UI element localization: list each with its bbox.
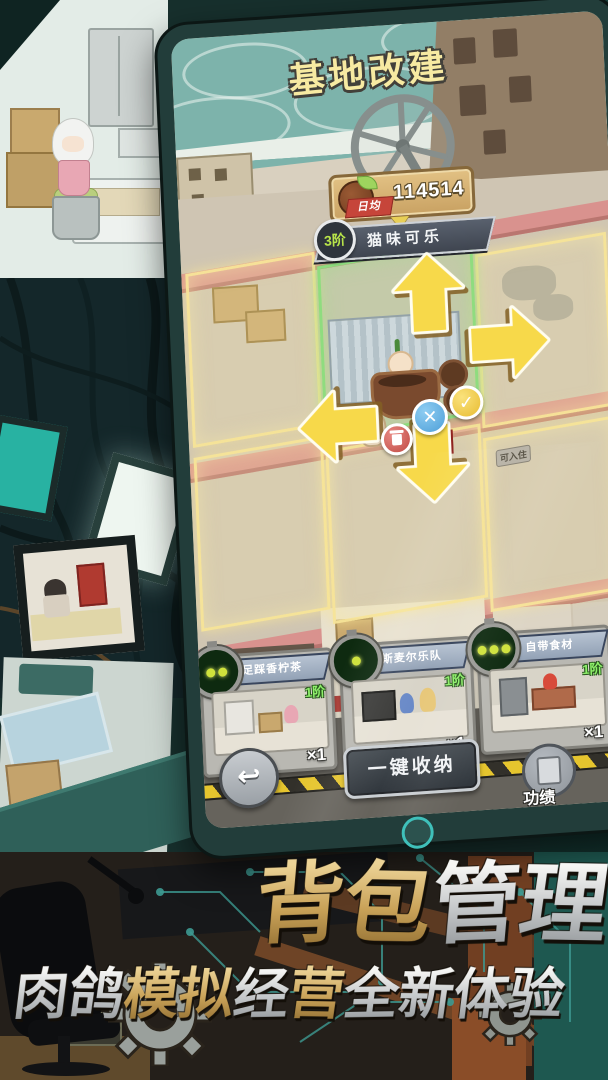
- promo-character: 肉: [10, 964, 73, 1025]
- promo-character: 包: [337, 855, 438, 953]
- move-up-arrow[interactable]: [389, 248, 469, 337]
- collect-all-button[interactable]: 一键收纳: [343, 738, 481, 799]
- crt-monitor-scene: [13, 535, 145, 661]
- character-face: [62, 136, 84, 152]
- achievement-label: 功绩: [523, 781, 584, 809]
- count-label: ×1: [306, 745, 326, 766]
- signal-dot: [351, 656, 360, 666]
- medal-icon: [536, 756, 561, 786]
- promo-character: 背: [252, 854, 349, 954]
- monitor-scene-character-body: [43, 594, 71, 618]
- promo-headline: 背包管理: [236, 856, 608, 953]
- promo-character: 拟: [175, 964, 238, 1025]
- fridge-illustration: [88, 28, 154, 127]
- background-kitchen-scene: [0, 0, 168, 282]
- home-button[interactable]: [401, 816, 434, 850]
- promo-character: 体: [450, 964, 513, 1025]
- promo-character: 模: [120, 964, 183, 1025]
- promo-subline: 肉鸽模拟经营全新体验: [14, 964, 608, 1025]
- promo-character: 鸽: [65, 964, 128, 1025]
- signal-dot: [501, 644, 510, 654]
- office-chair-base: [22, 1062, 110, 1076]
- income-badge: 日均 114514: [328, 165, 476, 223]
- promo-character: 全: [340, 964, 403, 1025]
- promo-character: 经: [230, 964, 293, 1025]
- income-value: 114514: [389, 177, 468, 205]
- pot-illustration: [52, 196, 100, 240]
- signal-dot: [206, 668, 215, 678]
- promo-character: 营: [285, 964, 348, 1025]
- tier-label: 1阶: [444, 669, 465, 689]
- signal-dot: [489, 644, 498, 654]
- table-illustration: [18, 664, 93, 697]
- signal-dot: [477, 645, 486, 655]
- promo-character: 验: [505, 964, 568, 1025]
- room-card[interactable]: 自带食材1阶×1: [476, 624, 608, 755]
- promo-character: 新: [395, 964, 458, 1025]
- trash-icon: [392, 434, 402, 446]
- character-dress: [58, 160, 90, 196]
- move-right-arrow[interactable]: [466, 302, 553, 384]
- tier-label: 1阶: [582, 658, 603, 678]
- game-screen: 基地改建 日均 114514 猫味可乐 3阶 可入住 ✓ ✕: [171, 10, 608, 829]
- income-label: 日均: [345, 196, 394, 218]
- phone-frame: 基地改建 日均 114514 猫味可乐 3阶 可入住 ✓ ✕: [153, 0, 608, 861]
- signal-dot: [218, 667, 227, 677]
- move-left-arrow[interactable]: [295, 385, 382, 467]
- tier-label: 1阶: [305, 681, 326, 701]
- monitor-scene-vending: [76, 563, 108, 607]
- count-label: ×1: [584, 722, 604, 743]
- promo-poster: { "game_screen": { "title": "基地改建", "inc…: [0, 0, 608, 1080]
- mic-head: [128, 888, 144, 904]
- promo-character: 管: [428, 854, 525, 954]
- promo-character: 理: [513, 855, 608, 953]
- grid-cell[interactable]: [483, 416, 608, 613]
